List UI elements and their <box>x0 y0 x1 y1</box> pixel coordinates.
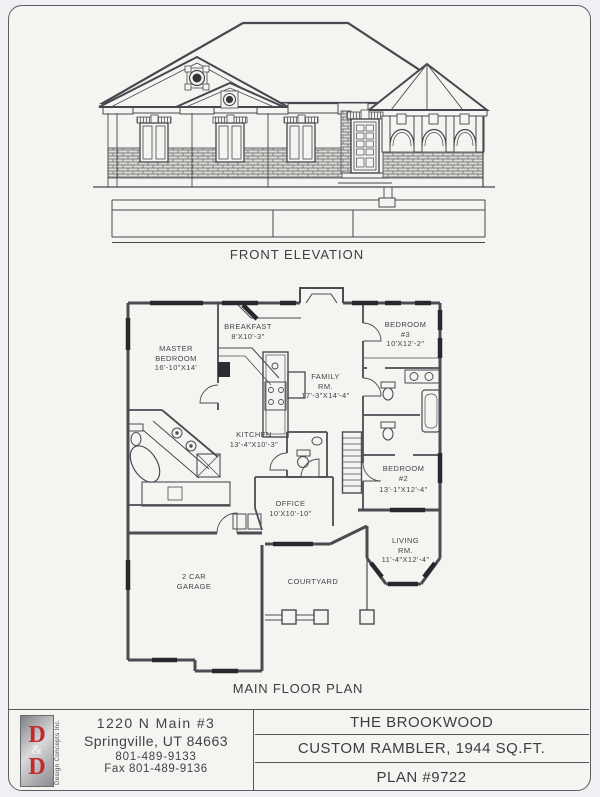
main-floor-plan-caption: MAIN FLOOR PLAN <box>198 681 398 696</box>
room-label-courtyard: COURTYARD <box>268 577 358 587</box>
stairs <box>343 432 362 493</box>
gable-vent-center <box>221 91 238 108</box>
room-label-master-bedroom: MASTER BEDROOM 16'-10"X14' <box>130 344 222 373</box>
company-logo: D & D <box>20 715 54 787</box>
master-closet <box>142 482 230 506</box>
address-city: Springville, UT 84663 <box>64 733 248 749</box>
room-dimensions: 11'-4"X12'-4" <box>363 555 448 565</box>
address-street: 1220 N Main #3 <box>64 715 248 731</box>
porch-arches <box>382 114 484 187</box>
front-elevation-caption: FRONT ELEVATION <box>187 247 407 262</box>
powder-room-fixtures <box>297 437 322 468</box>
phone-number: 801-489-9133 <box>64 751 248 763</box>
room-dimensions: 17'-3"X14'-4" <box>283 391 368 401</box>
master-vanity <box>143 421 209 478</box>
room-dimensions: 8'X10'-3" <box>203 332 293 342</box>
room-name: COURTYARD <box>268 577 358 587</box>
room-label-living-room: LIVING RM. 11'-4"X12'-4" <box>363 536 448 565</box>
plan-title-cell: THE BROOKWOOD CUSTOM RAMBLER, 1944 SQ.FT… <box>255 710 589 791</box>
room-name: #2 <box>361 474 446 484</box>
room-label-kitchen: KITCHEN 13'-4"X10'-3" <box>210 430 298 449</box>
logo-letter-d-top: D <box>28 725 45 745</box>
fireplace <box>300 288 343 303</box>
plan-sheet: FRONT ELEVATION <box>0 0 600 797</box>
room-name: BEDROOM <box>363 320 448 330</box>
logo-letter-d-bottom: D <box>28 757 45 777</box>
front-elevation-drawing <box>85 12 515 247</box>
room-dimensions: 16'-10"X14' <box>130 363 222 373</box>
plan-title: THE BROOKWOOD <box>255 710 589 735</box>
window <box>137 115 171 162</box>
room-dimensions: 10'X10'-10" <box>248 509 333 519</box>
room-label-bedroom-3: BEDROOM #3 10'X12'-2" <box>363 320 448 349</box>
room-dimensions: 10'X12'-2" <box>363 339 448 349</box>
room-name: KITCHEN <box>210 430 298 440</box>
room-label-garage: 2 CAR GARAGE <box>150 572 238 591</box>
plan-number: PLAN #9722 <box>255 763 589 791</box>
room-label-family-room: FAMILY RM. 17'-3"X14'-4" <box>283 372 368 401</box>
room-dimensions: 13'-1"X12'-4" <box>361 485 446 495</box>
room-label-bedroom-2: BEDROOM #2 13'-1"X12'-4" <box>361 464 446 495</box>
room-name: 2 CAR <box>150 572 238 582</box>
window <box>284 115 318 162</box>
room-name: RM. <box>363 546 448 556</box>
room-name: MASTER <box>130 344 222 354</box>
company-info-cell: D & D Design Concepts Inc. 1220 N Main #… <box>8 710 253 791</box>
room-name: BREAKFAST <box>203 322 293 332</box>
room-name: GARAGE <box>150 582 238 592</box>
gable-vent-left <box>185 66 209 90</box>
room-name: #3 <box>363 330 448 340</box>
foundation-lines <box>112 187 485 243</box>
hall-bath-fixtures <box>381 370 440 440</box>
courtyard-fence <box>265 558 374 624</box>
room-dimensions: 13'-4"X10'-3" <box>210 440 298 450</box>
room-name: BEDROOM <box>130 354 222 364</box>
fax-number: Fax 801-489-9136 <box>64 763 248 775</box>
plan-subtitle: CUSTOM RAMBLER, 1944 SQ.FT. <box>255 735 589 763</box>
window <box>213 115 247 162</box>
room-name: LIVING <box>363 536 448 546</box>
room-name: FAMILY <box>283 372 368 382</box>
shower <box>197 454 220 477</box>
room-label-office: OFFICE 10'X10'-10" <box>248 499 333 518</box>
master-tub <box>124 441 166 488</box>
room-name: OFFICE <box>248 499 333 509</box>
title-block: D & D Design Concepts Inc. 1220 N Main #… <box>8 709 589 791</box>
room-label-breakfast: BREAKFAST 8'X10'-3" <box>203 322 293 341</box>
kitchen-counter <box>218 348 279 385</box>
master-toilet <box>129 424 143 446</box>
company-address: 1220 N Main #3 Springville, UT 84663 801… <box>64 715 248 775</box>
room-name: BEDROOM <box>361 464 446 474</box>
logo-company-name-vertical: Design Concepts Inc. <box>54 715 61 785</box>
room-name: RM. <box>283 382 368 392</box>
